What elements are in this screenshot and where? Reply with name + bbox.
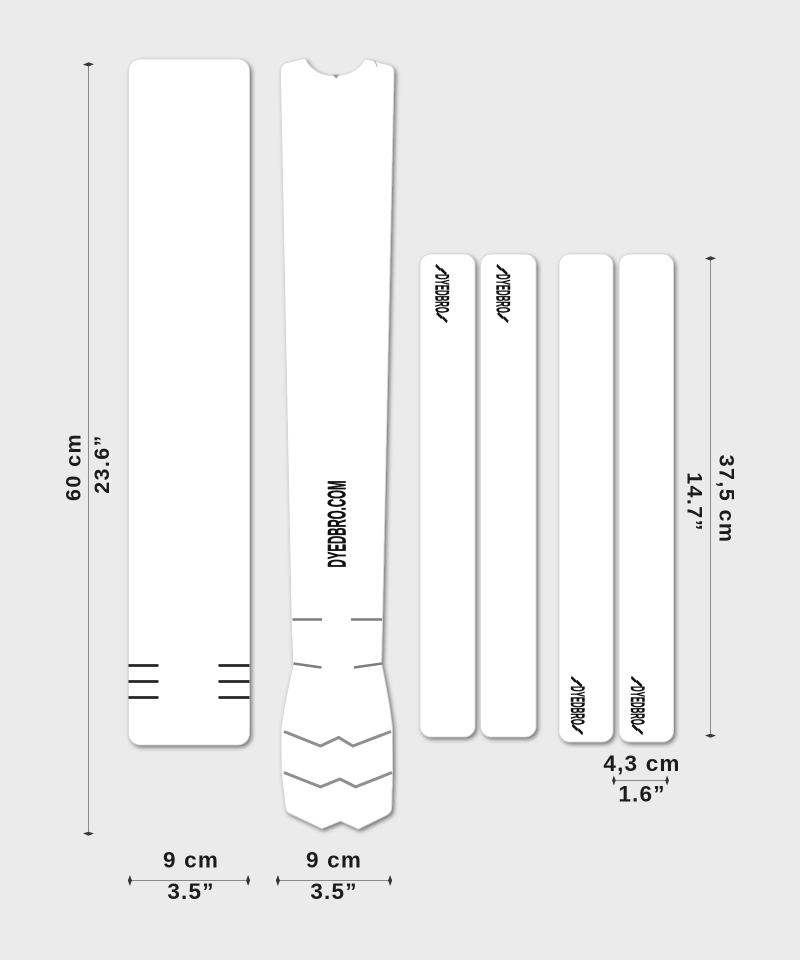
svg-text:60 cm: 60 cm — [62, 433, 86, 501]
svg-text:3.5”: 3.5” — [310, 879, 357, 904]
svg-text:DYEDBRO.COM: DYEDBRO.COM — [324, 481, 352, 568]
svg-text:4,3 cm: 4,3 cm — [603, 751, 680, 776]
svg-text:9 cm: 9 cm — [306, 848, 362, 873]
svg-text:DYEDBRO: DYEDBRO — [626, 686, 648, 725]
svg-text:37,5 cm: 37,5 cm — [715, 455, 739, 544]
svg-text:DYEDBRO: DYEDBRO — [492, 274, 514, 313]
svg-text:3.5”: 3.5” — [167, 879, 214, 904]
svg-text:14.7”: 14.7” — [683, 472, 707, 532]
svg-text:1.6”: 1.6” — [618, 782, 665, 807]
svg-text:DYEDBRO: DYEDBRO — [566, 686, 588, 725]
svg-text:23.6”: 23.6” — [90, 434, 114, 494]
svg-text:9 cm: 9 cm — [163, 848, 219, 873]
svg-text:DYEDBRO: DYEDBRO — [431, 274, 453, 313]
